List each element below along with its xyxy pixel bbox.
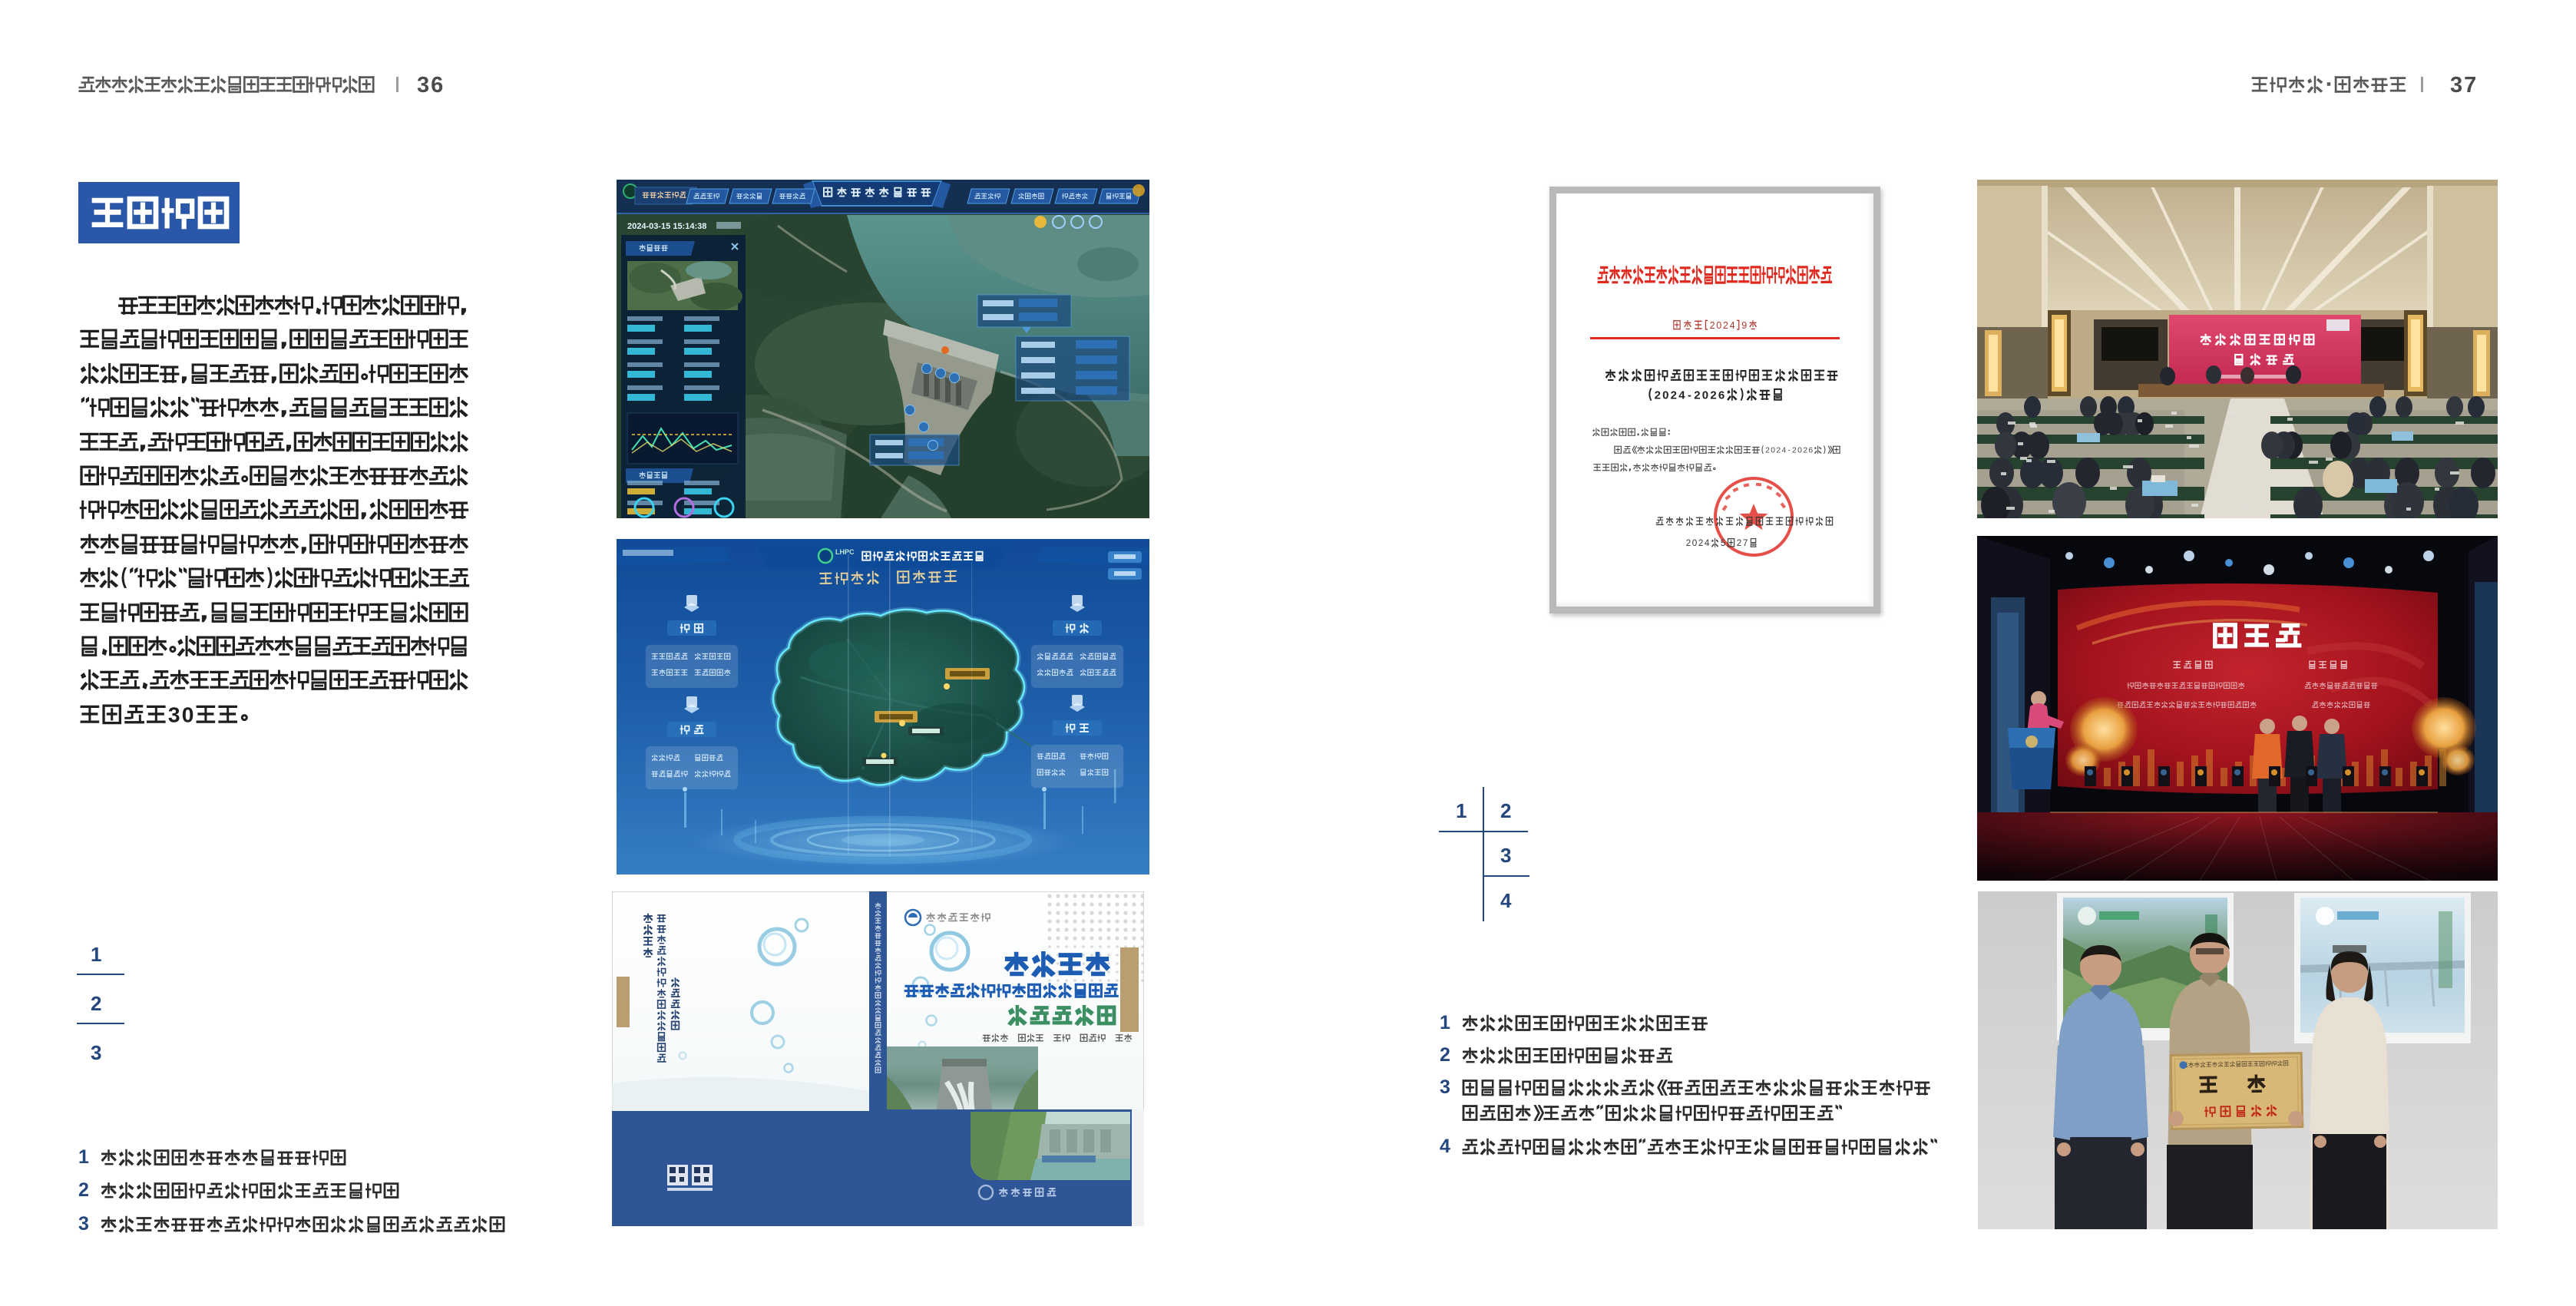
svg-text:0: 0 [1716,320,1721,331]
svg-text:2: 2 [1803,447,1807,455]
svg-text:LHPC: LHPC [835,548,855,556]
svg-text:7: 7 [1743,538,1748,548]
svg-text:2: 2 [1710,388,1716,402]
svg-text:0: 0 [1771,447,1775,455]
svg-text:0: 0 [182,702,194,726]
svg-text:2: 2 [1792,447,1797,455]
svg-text:2024-03-15 15:14:38: 2024-03-15 15:14:38 [627,222,706,231]
svg-text:2: 2 [1710,320,1715,331]
svg-text:4: 4 [1678,388,1685,402]
svg-text:0: 0 [1702,388,1708,402]
svg-text:6: 6 [1808,447,1813,455]
svg-text:2: 2 [1776,447,1781,455]
svg-text:4: 4 [1730,320,1735,331]
svg-text:4: 4 [1781,447,1786,455]
svg-text:2: 2 [1686,538,1691,548]
svg-text:2: 2 [1723,320,1728,331]
svg-text:-: - [1688,388,1691,402]
svg-text:2: 2 [1655,388,1661,402]
svg-text:5: 5 [1721,538,1725,548]
svg-text:-: - [1787,447,1790,455]
svg-text:2: 2 [1698,538,1703,548]
svg-text:0: 0 [1662,388,1668,402]
svg-text:0: 0 [1797,447,1802,455]
svg-text:2: 2 [1765,447,1770,455]
svg-text:6: 6 [1718,388,1724,402]
svg-text:2: 2 [1694,388,1700,402]
svg-text:9: 9 [1741,320,1747,331]
svg-text:2: 2 [1671,388,1677,402]
svg-text:3: 3 [168,702,180,726]
svg-text:0: 0 [1692,538,1698,548]
svg-text:2: 2 [1737,538,1741,548]
svg-text:4: 4 [1705,538,1710,548]
